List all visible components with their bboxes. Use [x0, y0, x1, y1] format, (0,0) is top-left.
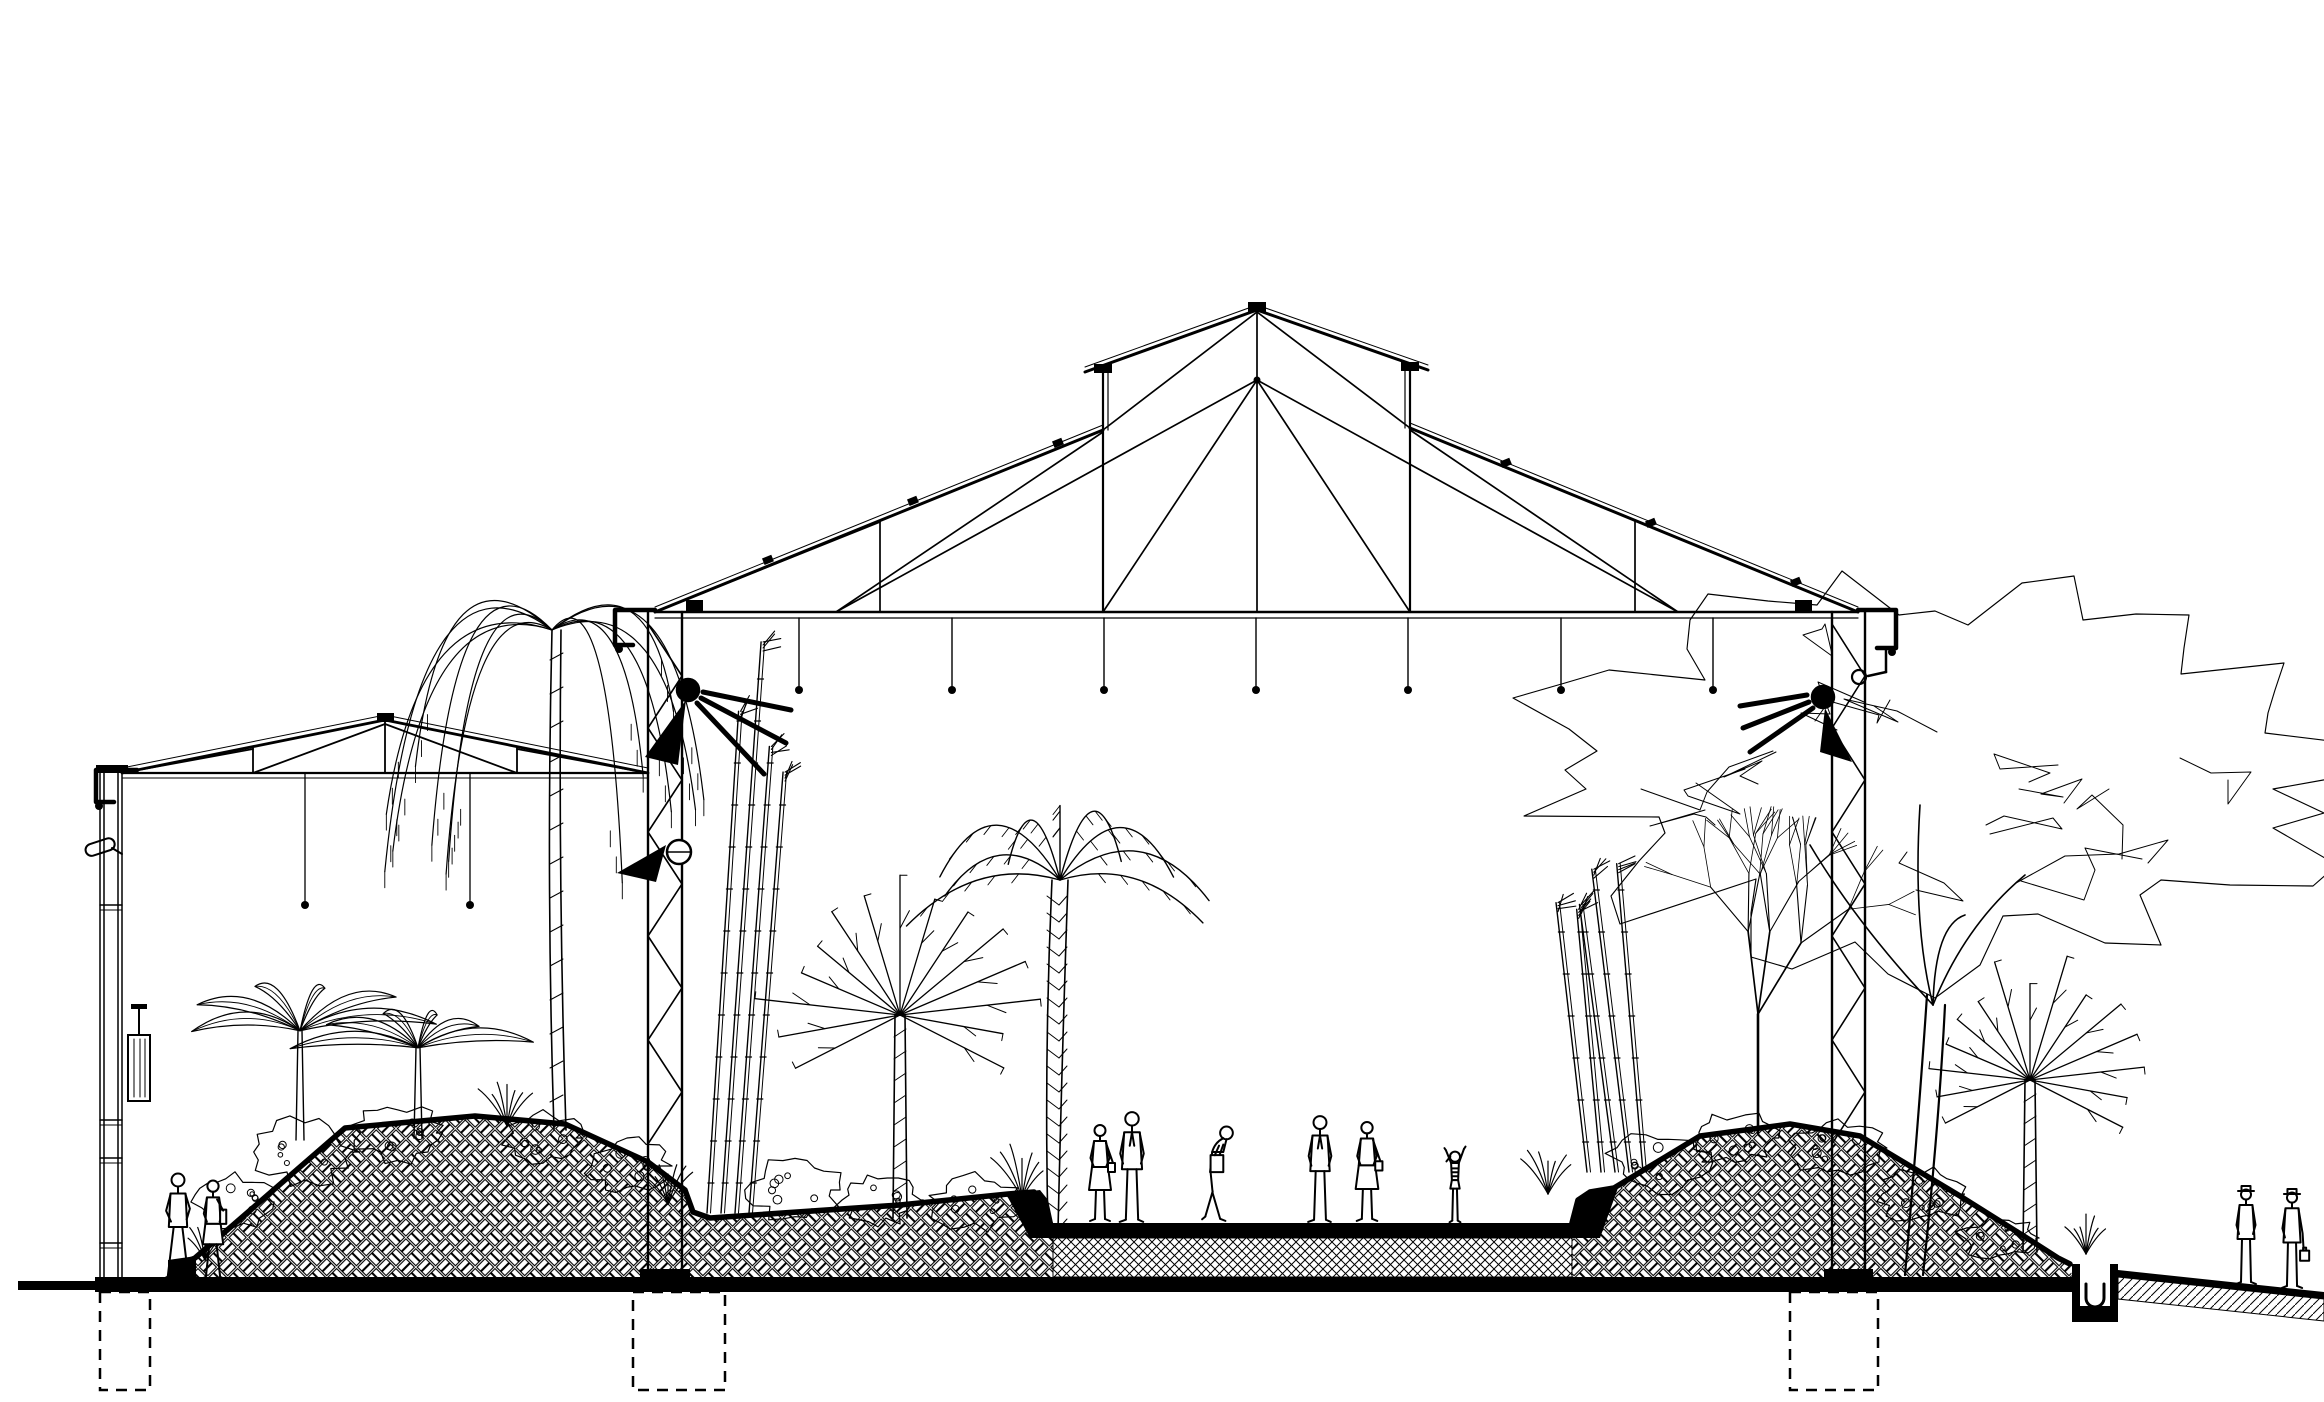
section-drawing — [0, 0, 2324, 1402]
ground-line-left — [18, 1281, 95, 1290]
floor-slab — [95, 1277, 2072, 1292]
drain-channel — [2072, 1264, 2118, 1322]
architectural-section-page — [0, 0, 2324, 1402]
greenhouse-section-svg — [0, 0, 2324, 1402]
central-walkway — [1053, 1223, 1572, 1277]
